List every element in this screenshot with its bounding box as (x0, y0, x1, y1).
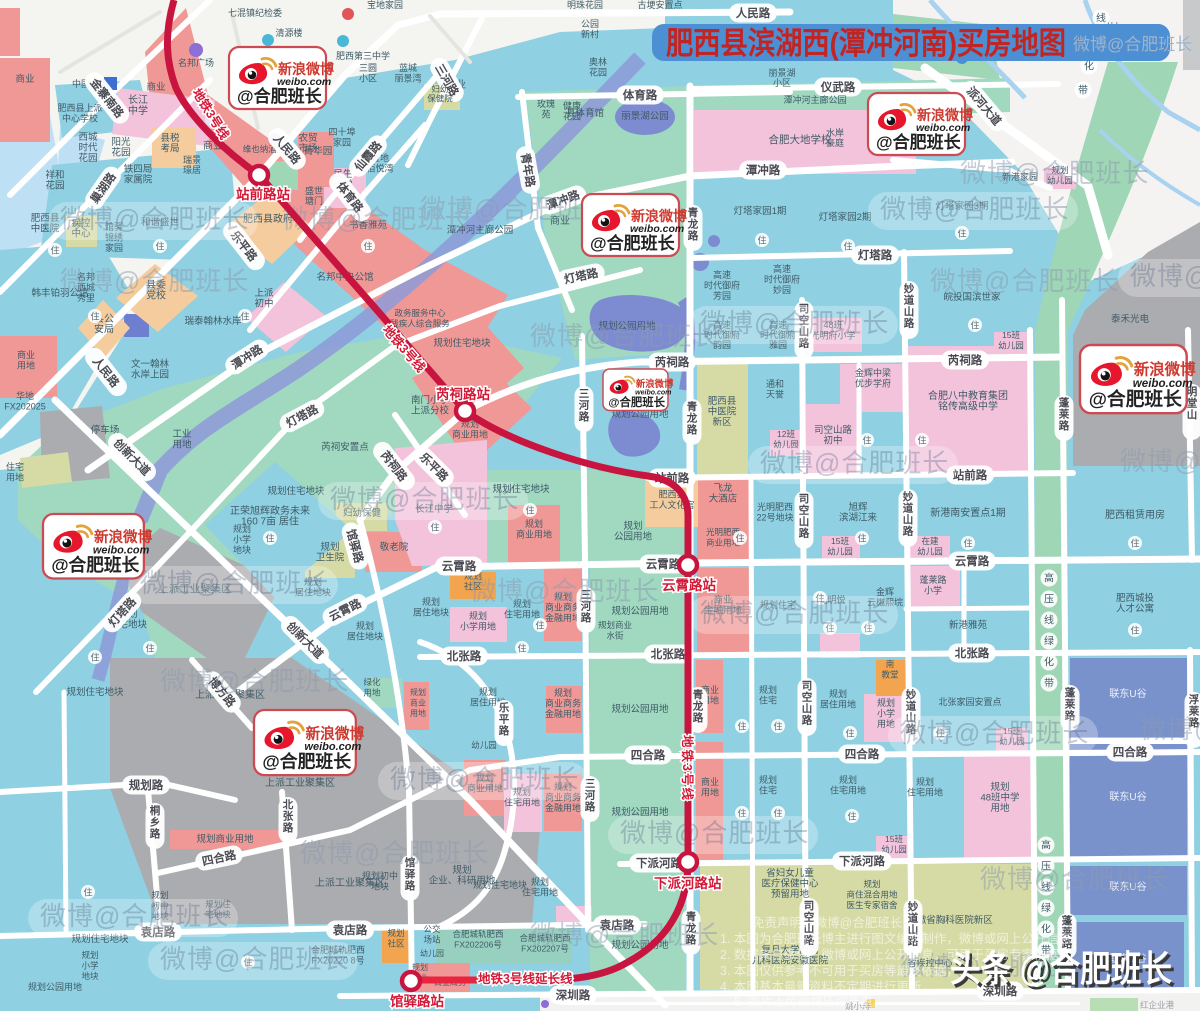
svg-text:规划小学地块: 规划小学地块 (81, 950, 99, 981)
svg-text:微博@合肥班长: 微博@合肥班长 (880, 194, 1069, 224)
svg-text:云霄路: 云霄路 (442, 559, 477, 573)
svg-text:住: 住 (917, 435, 926, 446)
svg-text:住: 住 (857, 533, 866, 544)
svg-text:微博@合肥班长: 微博@合肥班长 (160, 666, 349, 696)
svg-text:住: 住 (845, 728, 854, 739)
svg-text:地铁3号线延长线: 地铁3号线延长线 (478, 971, 573, 986)
svg-text:微博@合肥班长: 微博@合肥班长 (530, 321, 719, 351)
svg-text:15班幼儿园: 15班幼儿园 (998, 330, 1024, 351)
svg-text:住: 住 (50, 245, 59, 256)
svg-text:合肥城轨肥西FX202206号: 合肥城轨肥西FX202206号 (452, 929, 503, 950)
svg-text:盛世瑭门: 盛世瑭门 (305, 185, 323, 206)
svg-text:微博@合肥班长: 微博@合肥班长 (980, 864, 1169, 894)
svg-text:规划住宅地块: 规划住宅地块 (492, 483, 550, 495)
svg-text:规划公园用地: 规划公园用地 (611, 703, 669, 715)
svg-text:住: 住 (735, 533, 744, 544)
svg-text:规划住宅: 规划住宅 (759, 774, 777, 796)
svg-text:合肥大地学校: 合肥大地学校 (769, 133, 832, 146)
svg-text:免责声明：微博@合肥班长: 免责声明：微博@合肥班长 (752, 915, 903, 930)
svg-text:住: 住 (1130, 538, 1139, 549)
svg-text:地铁3号线: 地铁3号线 (680, 735, 695, 802)
svg-text:住: 住 (155, 241, 164, 252)
svg-text:公交场站: 公交场站 (423, 924, 441, 945)
svg-text:住: 住 (773, 721, 782, 732)
svg-text:规划住宅地块: 规划住宅地块 (473, 879, 527, 890)
svg-text:水岸豪庭: 水岸豪庭 (826, 127, 844, 148)
svg-text:绿化用地: 绿化用地 (363, 677, 381, 698)
svg-text:新港南安置点1期: 新港南安置点1期 (930, 506, 1006, 519)
svg-text:线: 线 (1096, 12, 1106, 25)
svg-text:2. 数据来自微信、微博或网上公开信息，可用于买房专家依据，: 2. 数据来自微信、微博或网上公开信息，可用于买房专家依据， (720, 947, 1071, 962)
svg-text:3. 本图仅供参考不可用于买房等最终依据，: 3. 本图仅供参考不可用于买房等最终依据， (720, 963, 959, 978)
svg-text:商业用地: 商业用地 (701, 776, 719, 798)
svg-text:商业: 商业 (15, 73, 34, 85)
svg-text:金辉中梁优步学府: 金辉中梁优步学府 (855, 367, 891, 389)
svg-text:青龙路: 青龙路 (686, 400, 698, 436)
svg-text:1. 本图为合肥班长博主进行图文编辑制作，微博或网上公开信息: 1. 本图为合肥班长博主进行图文编辑制作，微博或网上公开信息， (720, 931, 1084, 946)
svg-text:微博@合肥班长: 微博@合肥班长 (330, 484, 519, 514)
svg-text:微博@合肥班长: 微博@合肥班长 (390, 764, 579, 794)
svg-text:政务服务中心残疾人综合服务: 政务服务中心残疾人综合服务 (390, 308, 450, 329)
svg-text:瑞景璟居: 瑞景璟居 (183, 154, 201, 175)
svg-text:红企业港: 红企业港 (1140, 1000, 1175, 1010)
svg-text:铁四局家属院: 铁四局家属院 (124, 163, 153, 186)
svg-text:微博@合肥班长: 微博@合肥班长 (140, 568, 329, 598)
svg-text:微博@合肥班长: 微博@合肥班长 (1073, 35, 1192, 54)
svg-text:住: 住 (535, 620, 544, 631)
svg-text:人民路: 人民路 (736, 6, 771, 20)
svg-text:住: 住 (83, 887, 92, 898)
svg-text:微博@合肥班长: 微博@合肥班长 (160, 944, 349, 974)
svg-text:肥西城投人才公寓: 肥西城投人才公寓 (1116, 592, 1155, 615)
svg-text:住: 住 (363, 241, 372, 252)
svg-text:肥西第三中学: 肥西第三中学 (336, 50, 390, 61)
svg-text:潭冲河主廊公园: 潭冲河主廊公园 (783, 94, 846, 105)
svg-text:微博@合肥班长: 微博@合肥班长 (900, 718, 1089, 748)
svg-text:微博@合肥班长: 微博@合肥班长 (300, 838, 489, 868)
svg-text:新港雅苑: 新港雅苑 (949, 619, 988, 631)
svg-text:商业: 商业 (146, 81, 165, 93)
svg-text:规划住宅地块: 规划住宅地块 (66, 686, 124, 698)
svg-text:5. 图片上传微博压缩严重。: 5. 图片上传微博压缩严重。 (734, 994, 885, 1009)
svg-text:西城时代花园: 西城时代花园 (78, 132, 98, 164)
svg-text:微博@合肥班长: 微博@合肥班长 (700, 308, 889, 338)
svg-text:带: 带 (1078, 85, 1088, 97)
svg-text:住: 住 (847, 811, 856, 822)
svg-text:桐乡路: 桐乡路 (150, 804, 161, 840)
svg-text:妙道山路: 妙道山路 (904, 282, 915, 330)
svg-text:站前路站: 站前路站 (236, 186, 290, 202)
svg-text:青龙路: 青龙路 (687, 206, 699, 242)
svg-text:袁店路: 袁店路 (332, 923, 368, 937)
svg-text:古埂安置点: 古埂安置点 (637, 0, 682, 10)
svg-text:阳光花园: 阳光花园 (111, 136, 131, 159)
svg-text:规划公园用地: 规划公园用地 (28, 981, 82, 992)
svg-text:泰禾光电: 泰禾光电 (1111, 313, 1150, 325)
svg-text:三河路: 三河路 (579, 388, 590, 423)
svg-text:4. 本图基本最新资料不定期进行更新，: 4. 本图基本最新资料不定期进行更新， (720, 979, 934, 994)
svg-text:商业用地: 商业用地 (17, 349, 35, 371)
svg-text:瑞泰翰林水岸: 瑞泰翰林水岸 (184, 315, 242, 327)
svg-text:联东U谷: 联东U谷 (1109, 687, 1146, 700)
svg-text:带: 带 (1044, 678, 1054, 690)
svg-text:上派初中: 上派初中 (254, 288, 274, 310)
svg-text:规划住宅地块: 规划住宅地块 (267, 485, 325, 497)
svg-text:住: 住 (1130, 625, 1139, 636)
svg-text:肥西县滨湖西(潭冲河南)买房地图: 肥西县滨湖西(潭冲河南)买房地图 (666, 26, 1066, 61)
svg-text:住: 住 (517, 643, 526, 654)
svg-text:明珠花园: 明珠花园 (567, 0, 603, 10)
svg-text:宝地家园: 宝地家园 (367, 0, 403, 10)
svg-text:体育路: 体育路 (623, 88, 658, 102)
svg-text:云霄路站: 云霄路站 (662, 577, 716, 593)
svg-text:芮祠路站: 芮祠路站 (436, 386, 490, 402)
svg-text:化: 化 (1084, 60, 1094, 73)
svg-text:县体育馆: 县体育馆 (566, 107, 604, 119)
svg-text:妙道山路: 妙道山路 (903, 490, 914, 538)
svg-text:仪武路: 仪武路 (820, 80, 856, 94)
svg-text:祥和花园: 祥和花园 (45, 169, 64, 192)
svg-text:丽景湖公园: 丽景湖公园 (621, 111, 669, 122)
svg-text:微博@合肥班长: 微博@合肥班长 (700, 598, 889, 628)
svg-text:高: 高 (1041, 839, 1051, 852)
svg-text:长江中学: 长江中学 (128, 94, 148, 117)
svg-text:四合路: 四合路 (1113, 745, 1148, 759)
svg-text:微博@合肥班长: 微博@合肥班长 (60, 266, 249, 296)
svg-text:规划住宅地块: 规划住宅地块 (433, 337, 491, 349)
svg-text:蓬莱路: 蓬莱路 (1058, 396, 1070, 432)
svg-text:绿: 绿 (1044, 635, 1054, 648)
svg-text:微博@合肥班长: 微博@合肥班长 (1130, 261, 1200, 291)
svg-text:公园新村: 公园新村 (581, 19, 599, 40)
svg-text:四合路: 四合路 (845, 747, 880, 761)
svg-text:住: 住 (757, 235, 766, 246)
svg-text:下派河路站: 下派河路站 (654, 875, 722, 891)
svg-text:芮祠路: 芮祠路 (655, 355, 690, 369)
svg-text:住: 住 (265, 533, 274, 544)
svg-text:七混镇纪检委: 七混镇纪检委 (228, 7, 282, 18)
svg-text:住: 住 (90, 311, 99, 322)
svg-text:住: 住 (862, 435, 871, 446)
svg-text:住宅用地: 住宅用地 (6, 461, 24, 483)
svg-text:15班幼儿园: 15班幼儿园 (827, 536, 853, 557)
svg-text:微博@合肥班长: 微博@合肥班长 (960, 158, 1149, 188)
svg-text:联东U谷: 联东U谷 (1109, 790, 1146, 803)
svg-text:幼儿园: 幼儿园 (471, 740, 497, 750)
svg-text:绿: 绿 (1041, 902, 1051, 915)
svg-text:规划社区: 规划社区 (387, 928, 405, 949)
svg-text:微博@合肥班长: 微博@合肥班长 (530, 920, 719, 950)
svg-text:奥林花园: 奥林花园 (589, 56, 607, 78)
svg-text:微博@合肥班长: 微博@合肥班长 (760, 448, 949, 478)
svg-text:15班幼儿园: 15班幼儿园 (881, 834, 907, 855)
svg-text:住: 住 (145, 643, 154, 654)
svg-text:微博@合肥班长: 微博@合肥班长 (620, 818, 809, 848)
svg-text:微博@合肥班长: 微博@合肥班长 (470, 576, 659, 606)
svg-text:住: 住 (737, 721, 746, 732)
svg-text:住: 住 (963, 538, 972, 549)
svg-text:北张路: 北张路 (283, 798, 294, 834)
svg-text:青龙路: 青龙路 (692, 688, 704, 724)
svg-text:微博@合肥班长: 微博@合肥班长 (1120, 446, 1200, 476)
svg-text:馆驿路站: 馆驿路站 (390, 993, 444, 1009)
svg-text:幼儿园: 幼儿园 (420, 948, 444, 958)
svg-text:县税考局: 县税考局 (160, 132, 180, 155)
svg-text:化: 化 (1044, 656, 1054, 669)
svg-text:菁华园: 菁华园 (304, 145, 333, 157)
svg-text:微博@合肥班长: 微博@合肥班长 (60, 204, 249, 234)
svg-text:芮祠安置点: 芮祠安置点 (321, 441, 369, 453)
svg-text:灯塔家园2期: 灯塔家园2期 (819, 211, 872, 223)
svg-text:肥西县上派中心学校: 肥西县上派中心学校 (57, 103, 102, 124)
svg-text:文一翰林水岸上园: 文一翰林水岸上园 (131, 358, 170, 381)
svg-text:北张路: 北张路 (651, 647, 686, 661)
svg-text:线: 线 (1044, 614, 1054, 627)
svg-text:北张家园安置点: 北张家园安置点 (938, 696, 1001, 707)
svg-text:北张路: 北张路 (955, 646, 990, 660)
svg-text:工业用地: 工业用地 (172, 429, 192, 451)
svg-text:微博@合肥班长: 微博@合肥班长 (1140, 714, 1200, 744)
svg-text:清源楼: 清源楼 (275, 27, 302, 38)
svg-text:四合路: 四合路 (631, 748, 666, 762)
svg-text:规划商业用地: 规划商业用地 (196, 833, 254, 845)
svg-text:微博@合肥班长: 微博@合肥班长 (40, 901, 229, 931)
svg-text:肥西租赁用房: 肥西租赁用房 (1105, 508, 1165, 521)
svg-text:名邦广场: 名邦广场 (178, 57, 214, 68)
svg-text:敬老院: 敬老院 (380, 541, 409, 553)
svg-text:云霄路: 云霄路 (646, 557, 681, 571)
svg-text:合肥八中教育集团铭传高级中学: 合肥八中教育集团铭传高级中学 (928, 389, 1008, 413)
svg-text:潭冲路: 潭冲路 (746, 163, 781, 177)
svg-text:微博@合肥班长: 微博@合肥班长 (930, 266, 1119, 296)
svg-text:深圳路: 深圳路 (556, 988, 591, 1002)
svg-text:规划住宅: 规划住宅 (759, 684, 777, 706)
svg-text:压: 压 (1044, 594, 1054, 606)
svg-text:下派河路: 下派河路 (839, 854, 885, 868)
svg-text:规划小学地块: 规划小学地块 (233, 523, 251, 555)
svg-text:高: 高 (1044, 572, 1054, 585)
svg-text:通和天誉: 通和天誉 (766, 379, 784, 400)
svg-text:站前路: 站前路 (953, 468, 988, 482)
svg-text:芮祠路: 芮祠路 (948, 353, 983, 367)
svg-text:灯塔家园1期: 灯塔家园1期 (734, 205, 787, 217)
svg-text:下派河路: 下派河路 (636, 856, 682, 870)
svg-text:上派工业聚集区: 上派工业聚集区 (265, 776, 335, 789)
svg-text:司空山路: 司空山路 (802, 680, 813, 727)
svg-text:住: 住 (430, 522, 439, 533)
svg-text:灯塔路: 灯塔路 (858, 248, 893, 262)
svg-text:司空山路: 司空山路 (799, 493, 810, 540)
svg-text:规划商业用地: 规划商业用地 (410, 687, 426, 718)
svg-text:规划公园用地: 规划公园用地 (611, 605, 669, 617)
svg-text:住: 住 (240, 311, 249, 322)
svg-text:云霄路: 云霄路 (955, 554, 990, 568)
svg-text:三圆小区: 三圆小区 (359, 63, 377, 84)
svg-text:光明肥西22号地块: 光明肥西22号地块 (756, 501, 793, 523)
svg-text:规划路: 规划路 (129, 778, 164, 792)
svg-text:住: 住 (843, 241, 852, 252)
svg-text:住: 住 (970, 320, 979, 331)
svg-text:乐平路: 乐平路 (499, 701, 510, 737)
svg-text:住: 住 (90, 652, 99, 663)
svg-text:北张路: 北张路 (447, 649, 482, 663)
svg-text:明堂山: 明堂山 (1187, 386, 1198, 421)
